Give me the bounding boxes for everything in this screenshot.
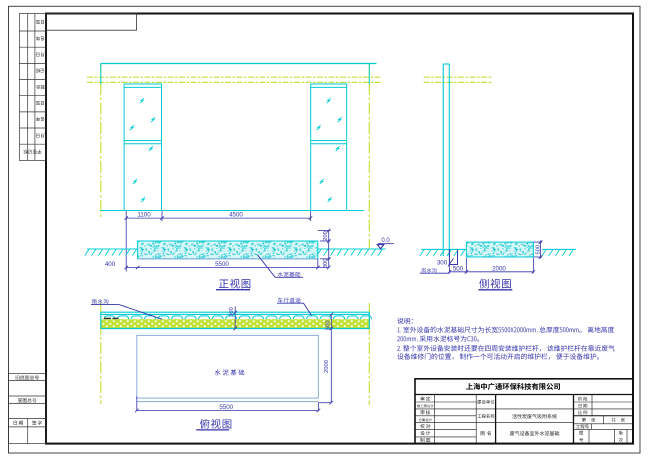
svg-text:400: 400 <box>105 261 116 268</box>
svg-text:2000: 2000 <box>324 360 330 373</box>
svg-text:500: 500 <box>326 320 332 330</box>
svg-text:2000: 2000 <box>492 266 506 273</box>
svg-text:300: 300 <box>437 259 448 266</box>
svg-text:500: 500 <box>535 245 541 254</box>
svg-text:300: 300 <box>229 307 235 317</box>
svg-text:5500: 5500 <box>215 261 229 268</box>
svg-text:5500: 5500 <box>219 404 233 411</box>
svg-text:0.0: 0.0 <box>381 238 390 244</box>
svg-text:4500: 4500 <box>229 212 243 219</box>
svg-text:300: 300 <box>323 258 329 268</box>
svg-text:500: 500 <box>453 266 464 273</box>
svg-text:200: 200 <box>323 231 329 241</box>
svg-text:1100: 1100 <box>137 212 151 219</box>
